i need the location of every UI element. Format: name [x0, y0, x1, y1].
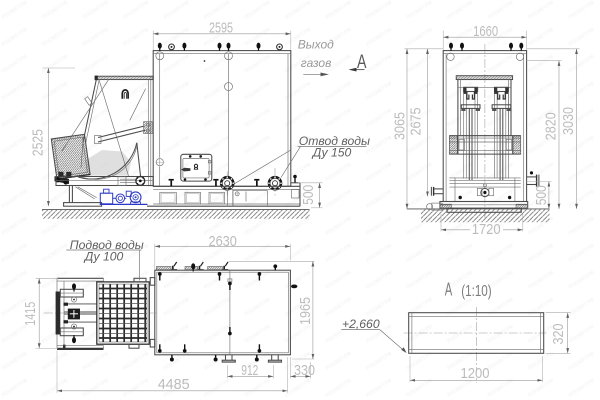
svg-text:2820: 2820	[542, 112, 559, 140]
svg-text:330: 330	[294, 362, 315, 379]
svg-text:1965: 1965	[297, 297, 314, 325]
svg-text:Ду 150: Ду 150	[311, 146, 352, 160]
svg-text:3030: 3030	[560, 107, 577, 135]
svg-text:(1:10): (1:10)	[461, 283, 492, 300]
svg-text:500: 500	[533, 185, 550, 205]
svg-text:Выход: Выход	[298, 38, 334, 52]
svg-text:А: А	[445, 280, 453, 300]
svg-text:2525: 2525	[29, 129, 46, 156]
svg-text:2675: 2675	[407, 108, 424, 136]
svg-text:320: 320	[550, 324, 567, 345]
svg-text:2630: 2630	[208, 233, 237, 250]
svg-text:1660: 1660	[473, 23, 498, 40]
svg-text:+2,660: +2,660	[342, 317, 380, 331]
svg-text:1720: 1720	[472, 221, 501, 238]
svg-text:1415: 1415	[22, 302, 39, 326]
svg-text:500: 500	[300, 185, 317, 205]
svg-text:4485: 4485	[158, 376, 190, 393]
svg-text:1200: 1200	[461, 365, 490, 382]
svg-text:газов: газов	[301, 56, 332, 70]
svg-text:2595: 2595	[209, 20, 233, 37]
svg-text:912: 912	[241, 362, 258, 379]
svg-text:3065: 3065	[392, 112, 409, 140]
svg-text:Ду 100: Ду 100	[83, 250, 124, 264]
